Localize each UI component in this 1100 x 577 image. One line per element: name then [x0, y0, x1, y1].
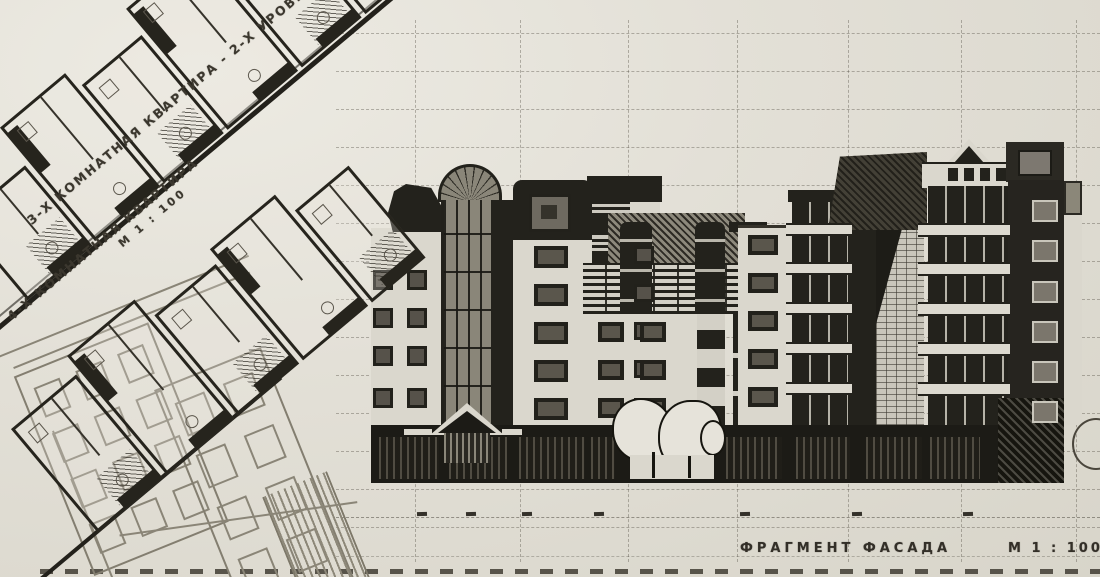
plan-furniture [318, 299, 336, 317]
balcony-slab [786, 342, 852, 355]
sloped-roof [828, 152, 927, 230]
balcony-slab [918, 262, 1010, 276]
architectural-sheet: 3-Х КОМНАТНАЯ КВАРТИРА - 2-Х УРОВНЕВАЯ К… [0, 0, 1100, 577]
window-tower-2 [695, 222, 725, 314]
ornament-square [964, 168, 974, 181]
storefront-panel [726, 437, 782, 479]
storefront-panel [796, 437, 850, 479]
plan-furniture [99, 78, 120, 99]
tower-side-window [1032, 240, 1058, 262]
storefront-panel [519, 437, 585, 479]
facade-window [634, 284, 654, 302]
ornament-square [948, 168, 958, 181]
balcony-slab [786, 262, 852, 275]
facade-window [640, 360, 666, 380]
balcony-slab [918, 223, 1010, 237]
plan-furniture [312, 204, 333, 225]
plan-furniture [110, 179, 128, 197]
plan-partition [329, 185, 373, 237]
plan-partition [40, 97, 94, 160]
facade-window [640, 322, 666, 342]
balcony-slab [918, 302, 1010, 316]
balcony-slab [786, 223, 852, 236]
facade-window [534, 246, 568, 268]
parapet-window [529, 194, 571, 232]
stair-tower-shadow-strip [491, 200, 513, 425]
tower-side-window [1032, 281, 1058, 303]
dimension-tick [963, 512, 973, 516]
plan-furniture [171, 309, 192, 330]
tree-trunk [688, 456, 691, 478]
facade-window [534, 398, 568, 420]
storefront-panel [591, 437, 615, 479]
tower-cap-window [1018, 150, 1052, 176]
tower-side-window [1032, 361, 1058, 383]
plan-partition [250, 218, 303, 281]
facade-slab-cap [587, 176, 662, 202]
dark-wall-sliver [848, 228, 876, 425]
tree-crown-3 [700, 420, 726, 456]
ornament-square [980, 168, 990, 181]
plan-furniture [245, 66, 263, 84]
tree-ground-patch [630, 455, 714, 479]
plan-partition [169, 0, 226, 43]
dimension-tick [852, 512, 862, 516]
facade-window [534, 284, 568, 306]
facade-window [748, 235, 778, 255]
plan-partition [51, 398, 100, 456]
storefront-panel [930, 437, 980, 479]
parapet-window-pane [541, 205, 557, 219]
dimension-tick [594, 512, 604, 516]
balcony-slab [786, 382, 852, 395]
facade-window [534, 322, 568, 344]
facade-window [598, 322, 624, 342]
facade-window [748, 387, 778, 407]
far-right-sliver [1064, 215, 1082, 425]
ornament-square [996, 168, 1006, 181]
plan-partition [108, 324, 164, 390]
balcony-slab [786, 302, 852, 315]
tower-side-window [1032, 401, 1058, 423]
pencil-window [237, 547, 280, 577]
facade-window [598, 360, 624, 380]
facade-window [748, 349, 778, 369]
stair-tower-arch-cap [438, 164, 502, 202]
far-right-parapet [1064, 181, 1082, 215]
facade-window [534, 360, 568, 382]
dimension-tick [740, 512, 750, 516]
plan-partition [192, 286, 240, 342]
balcony-slab [918, 382, 1010, 396]
facade-window [634, 246, 654, 264]
balcony-slab [918, 342, 1010, 356]
pencil-window [244, 424, 287, 469]
facade-caption: ФРАГМЕНТ ФАСАДА [740, 541, 951, 556]
tree-trunk [652, 452, 655, 478]
plan-furniture [183, 412, 201, 430]
facade-window [748, 273, 778, 293]
facade-scale-label: М 1 : 100 [1008, 541, 1100, 556]
tower-side-window [1032, 321, 1058, 343]
tower-side-window [1032, 200, 1058, 222]
facade-window [748, 311, 778, 331]
tree-sketch-circle [1072, 418, 1100, 470]
storefront-panel [866, 437, 922, 479]
plan-furniture [28, 422, 49, 443]
